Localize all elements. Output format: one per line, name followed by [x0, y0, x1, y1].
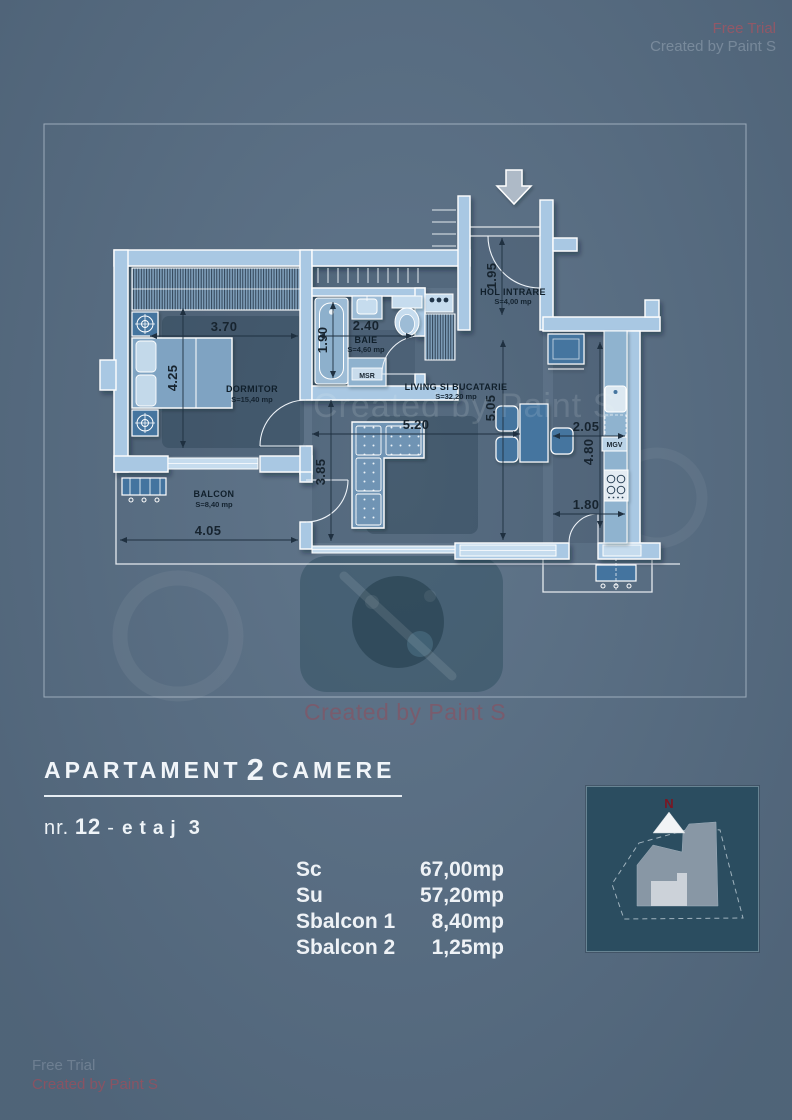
label-hol-area: S=4,00 mp [494, 297, 532, 306]
stove-icon [604, 470, 628, 501]
nr-value: 12 [75, 814, 101, 839]
north-label: N [664, 796, 673, 811]
area-row-sbalcon2: Sbalcon 2 1,25mp [296, 935, 504, 961]
etaj-label: etaj [122, 818, 183, 839]
chair-icon [496, 437, 518, 462]
apartment-subtitle: nr. 12-etaj3 [44, 814, 402, 840]
watermark-bottom-left: Free Trial Created by Paint S [32, 1056, 158, 1094]
dash: - [107, 817, 114, 839]
site-minimap: N [586, 786, 759, 952]
entrance-threshold [470, 227, 540, 236]
area-value: 8,40mp [432, 909, 504, 935]
label-hol: HOL INTRARE [480, 287, 546, 297]
label-dormitor-area: S=15,40 mp [231, 395, 273, 404]
page-title: APARTAMENT2CAMERE [44, 752, 402, 797]
area-label: Sbalcon 2 [296, 935, 395, 961]
dim-kitchen-door-width: 1.80 [573, 497, 600, 512]
areas-table: Sc 67,00mp Su 57,20mp Sbalcon 1 8,40mp S… [296, 857, 504, 961]
site-plan: N [587, 787, 758, 951]
title-apartament: APARTAMENT [44, 757, 242, 783]
watermark-created-by: Created by Paint S [32, 1075, 158, 1094]
area-row-su: Su 57,20mp [296, 883, 504, 909]
fridge-icon [548, 334, 584, 369]
watermark-center: Created by Paint S [313, 387, 616, 425]
stair-ticks [432, 210, 456, 246]
msr-closet [348, 358, 386, 386]
watermark-below-plan: Created by Paint S [304, 699, 506, 726]
label-baie: BAIE [354, 335, 377, 345]
watermark-top-right: Free Trial Created by Paint S [650, 20, 776, 56]
dim-living-height: 3.85 [313, 459, 328, 486]
chair-icon [551, 428, 573, 454]
area-value: 67,00mp [420, 857, 504, 883]
washer-icon [425, 294, 455, 360]
flyer-page: 3.70 2.40 1.90 4.25 1.95 5.05 5.20 3.85 … [0, 0, 792, 1120]
nr-label: nr. [44, 817, 69, 839]
dim-bath-height: 1.90 [315, 327, 330, 354]
area-row-sc: Sc 67,00mp [296, 857, 504, 883]
watermark-free-trial: Free Trial [650, 20, 776, 38]
title-camere: CAMERE [272, 757, 396, 783]
area-label: Su [296, 883, 323, 909]
watermark-free-trial: Free Trial [32, 1056, 158, 1075]
area-value: 1,25mp [432, 935, 504, 961]
dim-kitchen-height: 4.80 [581, 439, 596, 466]
wardrobe-hatch [132, 268, 300, 310]
label-mgv: MGV [607, 442, 623, 449]
sink-icon [352, 296, 382, 319]
watermark-created-by: Created by Paint S [650, 38, 776, 56]
entrance-arrow-icon [497, 170, 531, 204]
label-balcon-area: S=8,40 mp [195, 500, 233, 509]
bed-icon [132, 338, 232, 408]
area-label: Sc [296, 857, 322, 883]
label-msr: MSR [359, 373, 375, 380]
label-baie-area: S=4,60 mp [347, 345, 385, 354]
title-room-count: 2 [247, 752, 265, 787]
etaj-value: 3 [189, 817, 200, 839]
dim-bedroom-width: 3.70 [211, 319, 238, 334]
area-row-sbalcon1: Sbalcon 1 8,40mp [296, 909, 504, 935]
dim-bedroom-height: 4.25 [165, 365, 180, 392]
dim-balcony-width: 4.05 [195, 523, 222, 538]
radiator-icon [122, 478, 166, 502]
title-block: APARTAMENT2CAMERE nr. 12-etaj3 [44, 752, 402, 840]
radiator-icon [596, 558, 636, 590]
area-value: 57,20mp [420, 883, 504, 909]
label-balcon: BALCON [194, 489, 235, 499]
area-label: Sbalcon 1 [296, 909, 395, 935]
label-dormitor: DORMITOR [226, 384, 278, 394]
dim-hall-height: 1.95 [484, 263, 499, 290]
north-arrow-icon [653, 812, 685, 833]
dim-bath-width: 2.40 [353, 318, 380, 333]
